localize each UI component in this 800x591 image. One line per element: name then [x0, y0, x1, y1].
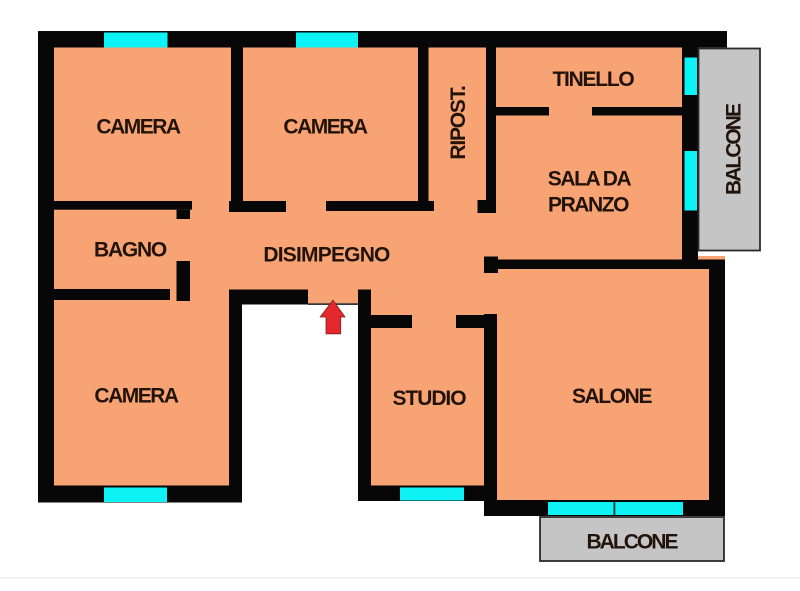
- svg-text:DISIMPEGNO: DISIMPEGNO: [263, 243, 390, 266]
- svg-text:BAGNO: BAGNO: [94, 239, 167, 262]
- svg-text:TINELLO: TINELLO: [552, 68, 634, 91]
- svg-text:CAMERA: CAMERA: [94, 384, 178, 407]
- svg-text:STUDIO: STUDIO: [392, 387, 466, 410]
- svg-text:SALONE: SALONE: [572, 385, 653, 408]
- svg-text:BALCONE: BALCONE: [586, 530, 678, 553]
- svg-text:PRANZO: PRANZO: [548, 193, 629, 216]
- svg-text:BALCONE: BALCONE: [723, 103, 746, 195]
- svg-text:SALA DA: SALA DA: [548, 167, 632, 190]
- svg-text:CAMERA: CAMERA: [283, 115, 367, 138]
- svg-text:RIPOST.: RIPOST.: [447, 86, 470, 160]
- svg-text:CAMERA: CAMERA: [96, 116, 180, 139]
